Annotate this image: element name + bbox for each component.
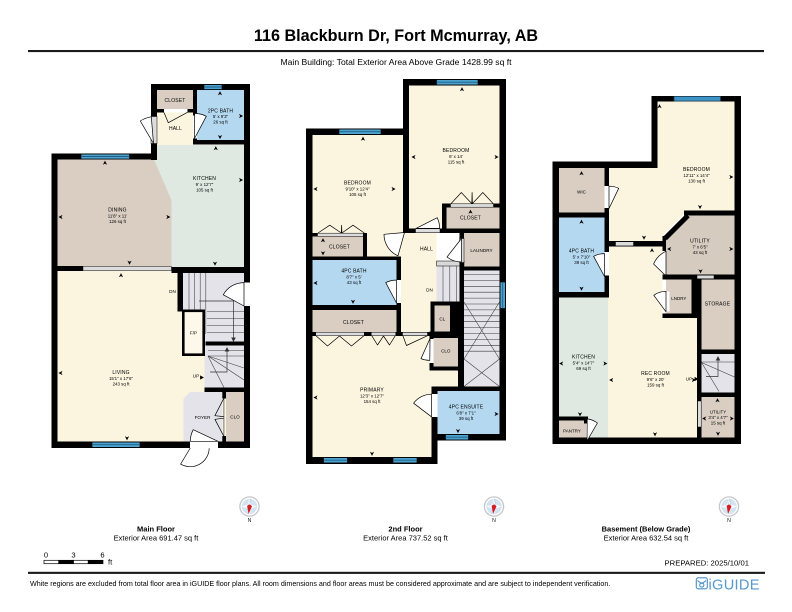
svg-text:9'10" x 12'4": 9'10" x 12'4" [345, 186, 370, 191]
svg-text:12'3" x 12'7": 12'3" x 12'7" [360, 393, 385, 398]
svg-text:CL: CL [439, 317, 445, 322]
svg-text:39 sq ft: 39 sq ft [574, 260, 589, 265]
svg-text:Main Building: Total Exterior: Main Building: Total Exterior Area Above… [280, 57, 512, 67]
svg-text:39 sq ft: 39 sq ft [459, 416, 474, 421]
svg-text:43 sq ft: 43 sq ft [347, 280, 362, 285]
svg-text:12'11" x 14'4": 12'11" x 14'4" [683, 173, 710, 178]
svg-text:UP: UP [686, 377, 692, 382]
svg-text:15 sq ft: 15 sq ft [711, 421, 726, 426]
svg-text:PANTRY: PANTRY [563, 429, 581, 434]
svg-text:9' x 12'7": 9' x 12'7" [196, 182, 214, 187]
svg-text:DN: DN [169, 289, 176, 294]
svg-text:HALL: HALL [420, 247, 433, 253]
svg-text:CLOSET: CLOSET [165, 98, 186, 104]
svg-text:0: 0 [44, 551, 48, 560]
svg-text:CLOSET: CLOSET [329, 245, 350, 251]
svg-text:White regions are excluded fro: White regions are excluded from total fl… [30, 580, 610, 588]
svg-text:CLO: CLO [441, 349, 451, 354]
svg-text:LNDRY: LNDRY [671, 296, 686, 301]
svg-text:CLOSET: CLOSET [460, 216, 481, 222]
svg-text:15'1" x 17'6": 15'1" x 17'6" [109, 376, 134, 381]
svg-text:154 sq ft: 154 sq ft [364, 399, 382, 404]
svg-text:159 sq ft: 159 sq ft [647, 382, 665, 387]
svg-text:43 sq ft: 43 sq ft [693, 250, 708, 255]
svg-text:9'6" x 20': 9'6" x 20' [647, 377, 665, 382]
svg-text:6: 6 [100, 551, 104, 560]
svg-text:Exterior Area 691.47 sq ft: Exterior Area 691.47 sq ft [114, 534, 200, 543]
svg-text:2nd Floor: 2nd Floor [388, 525, 422, 534]
svg-text:5' x 9'3": 5' x 9'3" [213, 114, 229, 119]
svg-text:Exterior Area 737.52 sq ft: Exterior Area 737.52 sq ft [363, 534, 449, 543]
svg-text:8' x 14': 8' x 14' [449, 154, 463, 159]
svg-text:iGUIDE: iGUIDE [709, 577, 760, 593]
svg-text:5' x 7'10": 5' x 7'10" [573, 254, 591, 259]
svg-text:UP: UP [193, 374, 199, 379]
svg-text:130 sq ft: 130 sq ft [688, 178, 706, 183]
svg-text:FOYER: FOYER [195, 415, 212, 420]
svg-text:7' x 6'5": 7' x 6'5" [692, 244, 708, 249]
svg-text:PREPARED: 2025/10/01: PREPARED: 2025/10/01 [665, 559, 749, 568]
svg-text:Basement (Below Grade): Basement (Below Grade) [602, 525, 691, 534]
svg-text:105 sq ft: 105 sq ft [349, 192, 367, 197]
svg-text:3: 3 [71, 551, 75, 560]
svg-text:WIC: WIC [577, 190, 587, 195]
svg-text:3'4" x 4'7": 3'4" x 4'7" [708, 415, 728, 420]
svg-text:HALL: HALL [169, 126, 182, 132]
svg-text:8'7" x 5': 8'7" x 5' [346, 274, 361, 279]
svg-text:69 sq ft: 69 sq ft [576, 366, 591, 371]
svg-text:6'8" x 7'1": 6'8" x 7'1" [456, 410, 476, 415]
svg-text:11'8" x 11': 11'8" x 11' [108, 213, 128, 218]
svg-text:STORAGE: STORAGE [705, 302, 731, 308]
svg-text:CLOSET: CLOSET [343, 320, 364, 326]
svg-text:Main Floor: Main Floor [137, 525, 175, 534]
svg-text:CLO: CLO [230, 415, 240, 420]
svg-text:126 sq ft: 126 sq ft [109, 219, 127, 224]
svg-text:LAUNDRY: LAUNDRY [470, 248, 493, 253]
svg-text:26 sq ft: 26 sq ft [213, 120, 228, 125]
svg-text:Exterior Area 632.54 sq ft: Exterior Area 632.54 sq ft [604, 534, 690, 543]
svg-text:105 sq ft: 105 sq ft [196, 187, 214, 192]
svg-text:UTILITY: UTILITY [710, 410, 726, 415]
svg-text:116 Blackburn Dr, Fort Mcmurra: 116 Blackburn Dr, Fort Mcmurray, AB [254, 27, 538, 45]
svg-text:115 sq ft: 115 sq ft [448, 159, 465, 164]
svg-text:DN: DN [426, 288, 433, 293]
svg-text:243 sq ft: 243 sq ft [113, 381, 131, 386]
svg-text:5'4" x 14'7": 5'4" x 14'7" [573, 360, 595, 365]
svg-text:F/P: F/P [190, 331, 197, 336]
